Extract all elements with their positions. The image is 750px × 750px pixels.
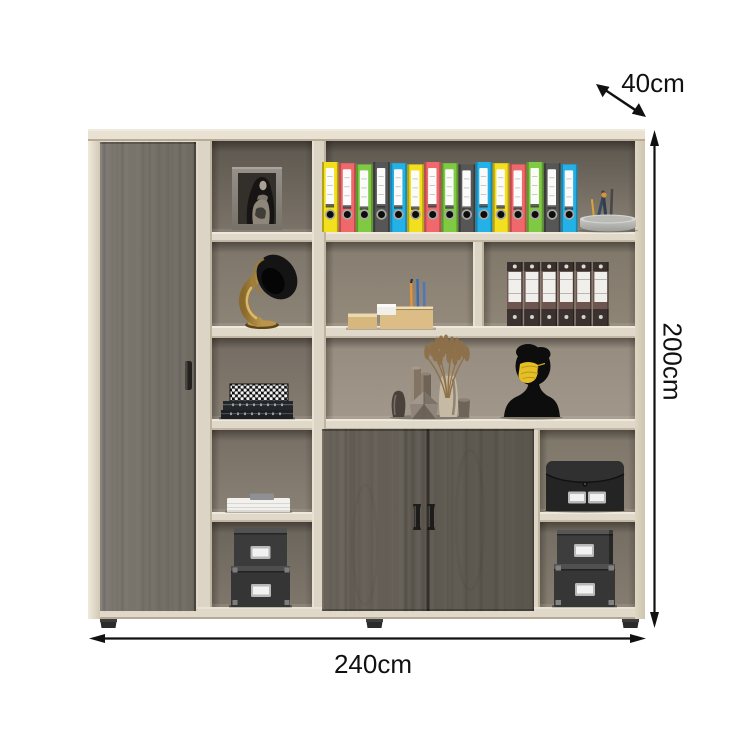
svg-text:40cm: 40cm: [621, 68, 685, 98]
svg-text:240cm: 240cm: [334, 649, 412, 679]
svg-text:200cm: 200cm: [658, 322, 688, 400]
